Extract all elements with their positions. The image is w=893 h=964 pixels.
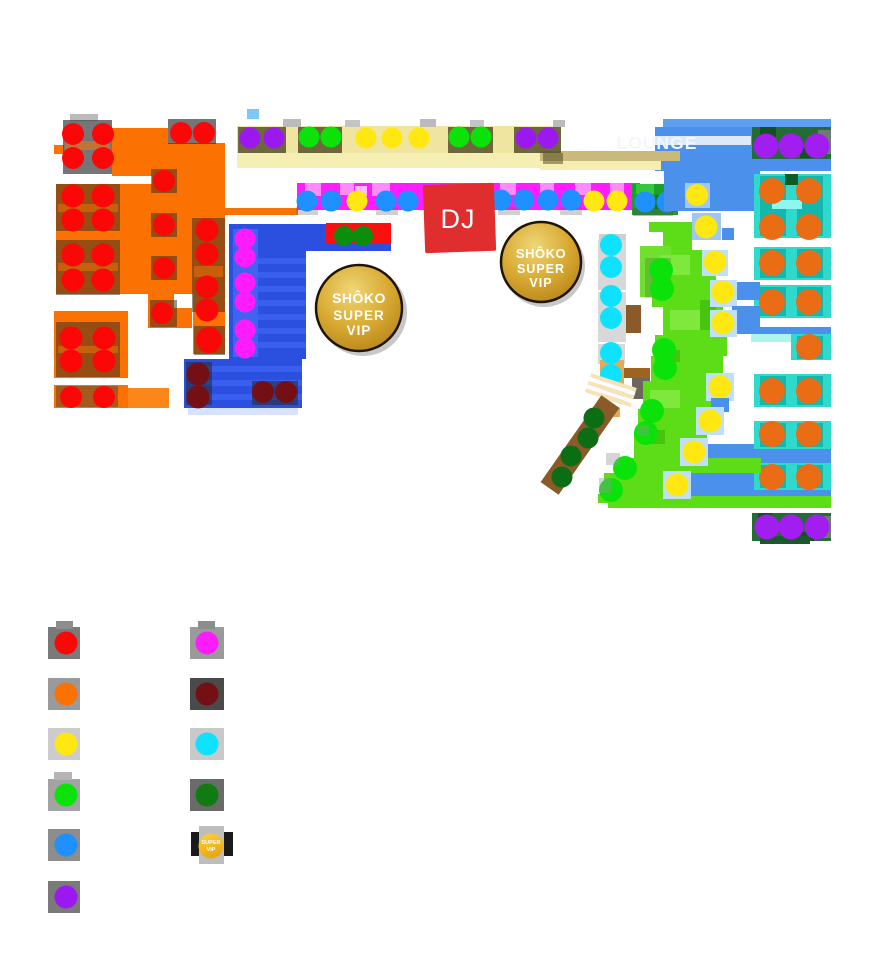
svg-text:SUPER: SUPER bbox=[202, 840, 221, 846]
svg-text:SUPER: SUPER bbox=[517, 262, 565, 276]
svg-text:DJ: DJ bbox=[441, 204, 476, 234]
svg-text:SUPER: SUPER bbox=[333, 308, 385, 323]
svg-text:LOUNGE: LOUNGE bbox=[617, 133, 698, 153]
svg-text:VIP: VIP bbox=[529, 276, 552, 290]
svg-text:VIP: VIP bbox=[207, 847, 216, 853]
svg-text:SHÔKO: SHÔKO bbox=[332, 289, 386, 306]
svg-text:SHÔKO: SHÔKO bbox=[516, 246, 566, 261]
svg-text:VIP: VIP bbox=[347, 323, 372, 338]
